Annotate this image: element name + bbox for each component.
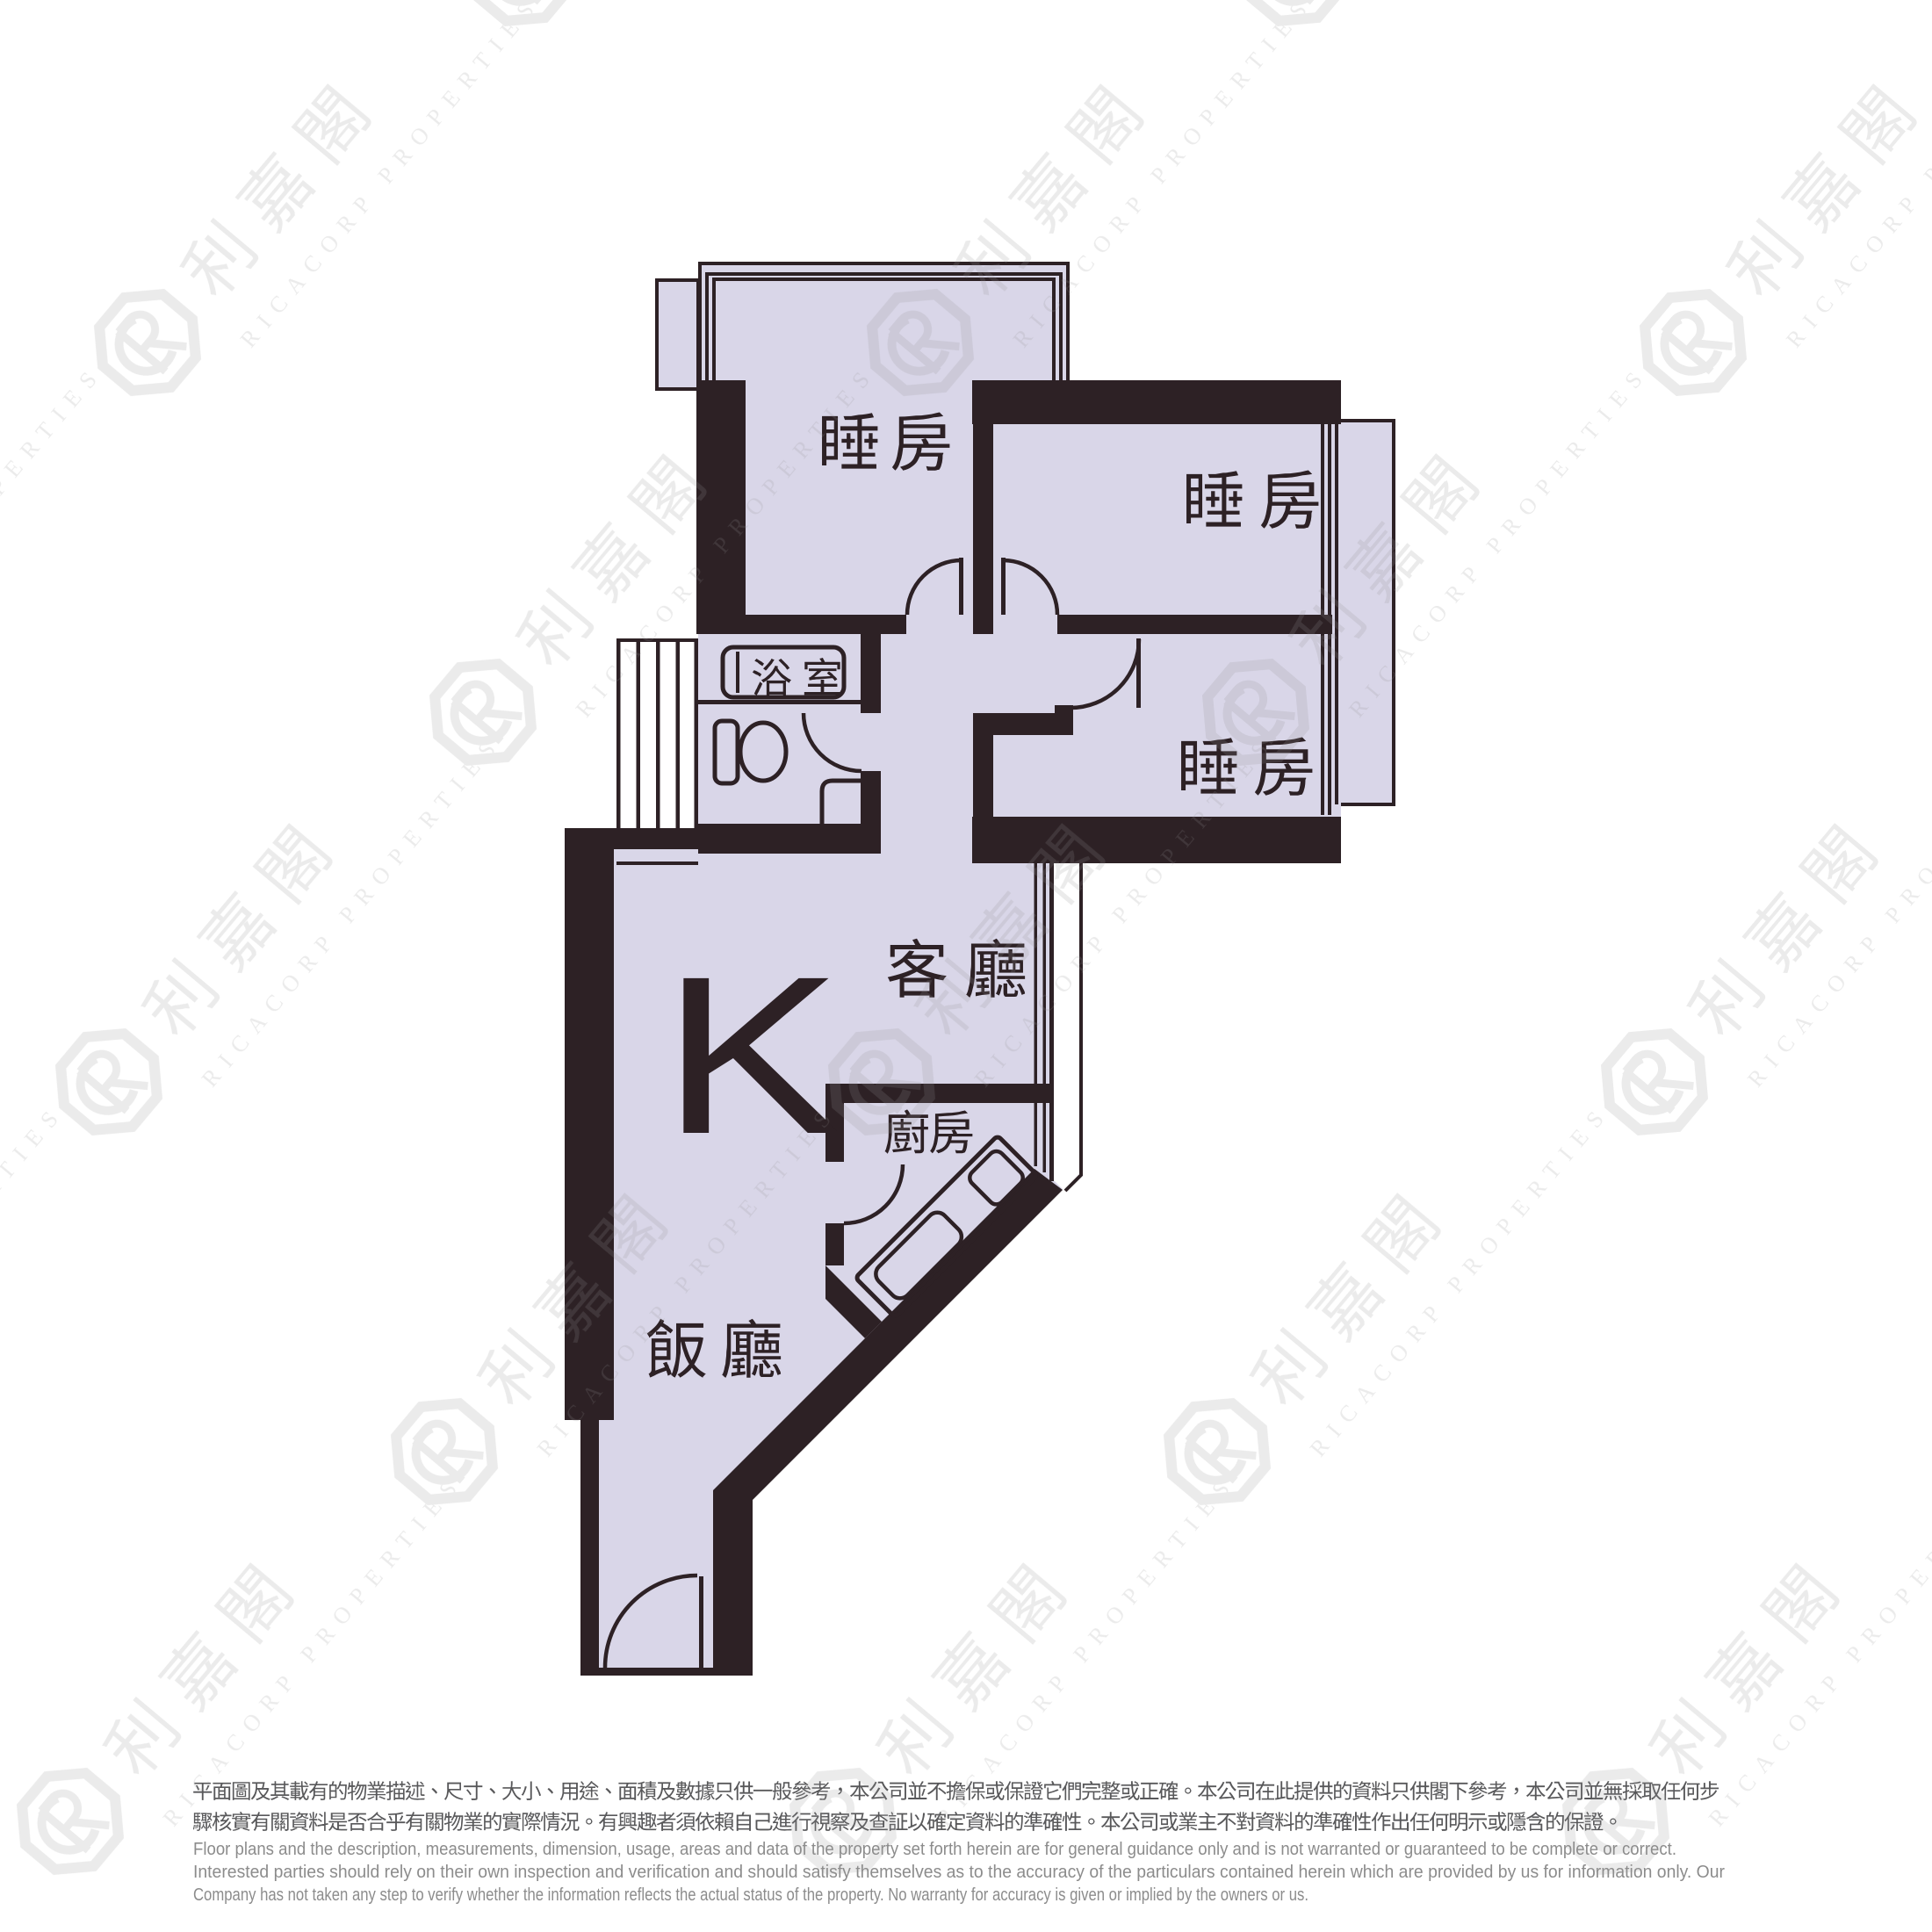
svg-text:Floor plans and the descriptio: Floor plans and the description, measure… — [193, 1840, 1676, 1859]
svg-text:Interested parties should rely: Interested parties should rely on their … — [193, 1863, 1725, 1882]
svg-text:Company has not taken any step: Company has not taken any step to verify… — [193, 1885, 1308, 1905]
